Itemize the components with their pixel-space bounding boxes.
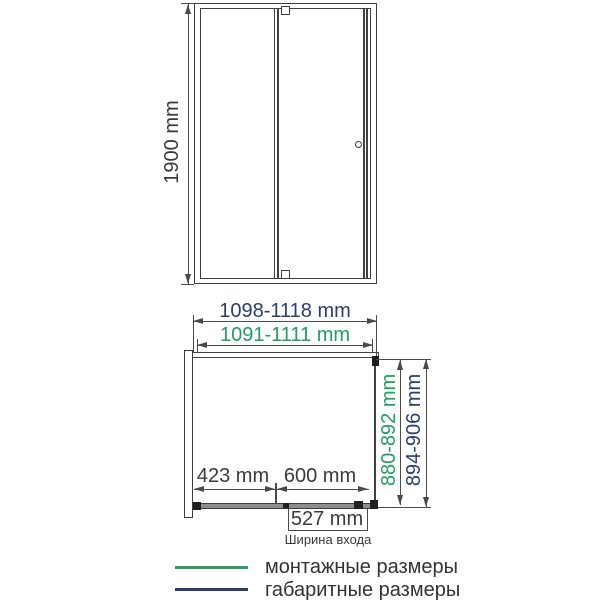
segment-divider-arrow-right xyxy=(277,486,287,492)
entry-width-label: 527 mm xyxy=(267,509,387,529)
front-divider-line-right xyxy=(277,9,279,278)
plan-front-rail-right-cap xyxy=(370,502,378,509)
front-view-inner-frame xyxy=(200,8,371,279)
segment-divider-tick xyxy=(275,483,277,504)
mounting-width-line xyxy=(197,345,373,346)
mounting-width-arrow-left xyxy=(197,342,207,348)
entry-width-ext-right xyxy=(367,509,368,531)
legend-mounting-label: монтажные размеры xyxy=(265,557,458,577)
door-segment-label: 600 mm xyxy=(260,466,380,486)
height-dim-arrow-up xyxy=(185,4,191,14)
front-door-edge-line-right xyxy=(366,9,368,278)
mounting-width-label: 1091-1111 mm xyxy=(185,325,385,345)
segment-dim-arrow-left xyxy=(194,486,204,492)
wall-section xyxy=(184,350,193,518)
segment-divider-arrow-left xyxy=(265,486,275,492)
entry-width-line xyxy=(288,530,369,531)
top-hinge-icon xyxy=(281,6,290,15)
door-handle-icon xyxy=(355,141,362,148)
plan-door-pivot-mark xyxy=(283,503,289,508)
legend-overall-line xyxy=(175,588,248,591)
depth-overall-label: 894-906 mm xyxy=(404,365,424,495)
plan-back-panel-inner xyxy=(193,357,379,359)
segment-dim-arrow-right xyxy=(358,486,368,492)
height-dim-label: 1900 mm xyxy=(162,92,182,192)
bottom-hinge-icon xyxy=(281,270,290,279)
mounting-width-ext-left xyxy=(197,339,198,352)
depth-mounting-label: 880-892 mm xyxy=(379,365,399,495)
legend-overall-label: габаритные размеры xyxy=(265,580,460,600)
legend-mounting-line xyxy=(175,566,248,569)
overall-width-arrow-left xyxy=(193,318,203,324)
depth-overall-arrow-down xyxy=(423,497,429,507)
front-door-edge-line-left xyxy=(363,9,365,278)
height-dim-arrow-down xyxy=(185,274,191,284)
entry-width-ext-left xyxy=(288,509,289,531)
entry-width-caption: Ширина входа xyxy=(268,533,388,547)
plan-front-rail-left-cap xyxy=(193,502,201,510)
depth-overall-line xyxy=(426,359,427,508)
depth-mounting-arrow-down xyxy=(397,495,403,505)
front-divider-line-left xyxy=(274,9,276,278)
plan-back-panel-outer xyxy=(193,352,379,354)
height-dim-line xyxy=(188,4,189,284)
mounting-width-arrow-right xyxy=(363,342,373,348)
technical-drawing-canvas: 1900 mm 1098-1118 mm 1091-1111 mm 423 mm… xyxy=(0,0,600,600)
overall-width-line xyxy=(193,321,377,322)
overall-width-label: 1098-1118 mm xyxy=(185,301,385,321)
plan-corner-post-top xyxy=(372,356,379,366)
